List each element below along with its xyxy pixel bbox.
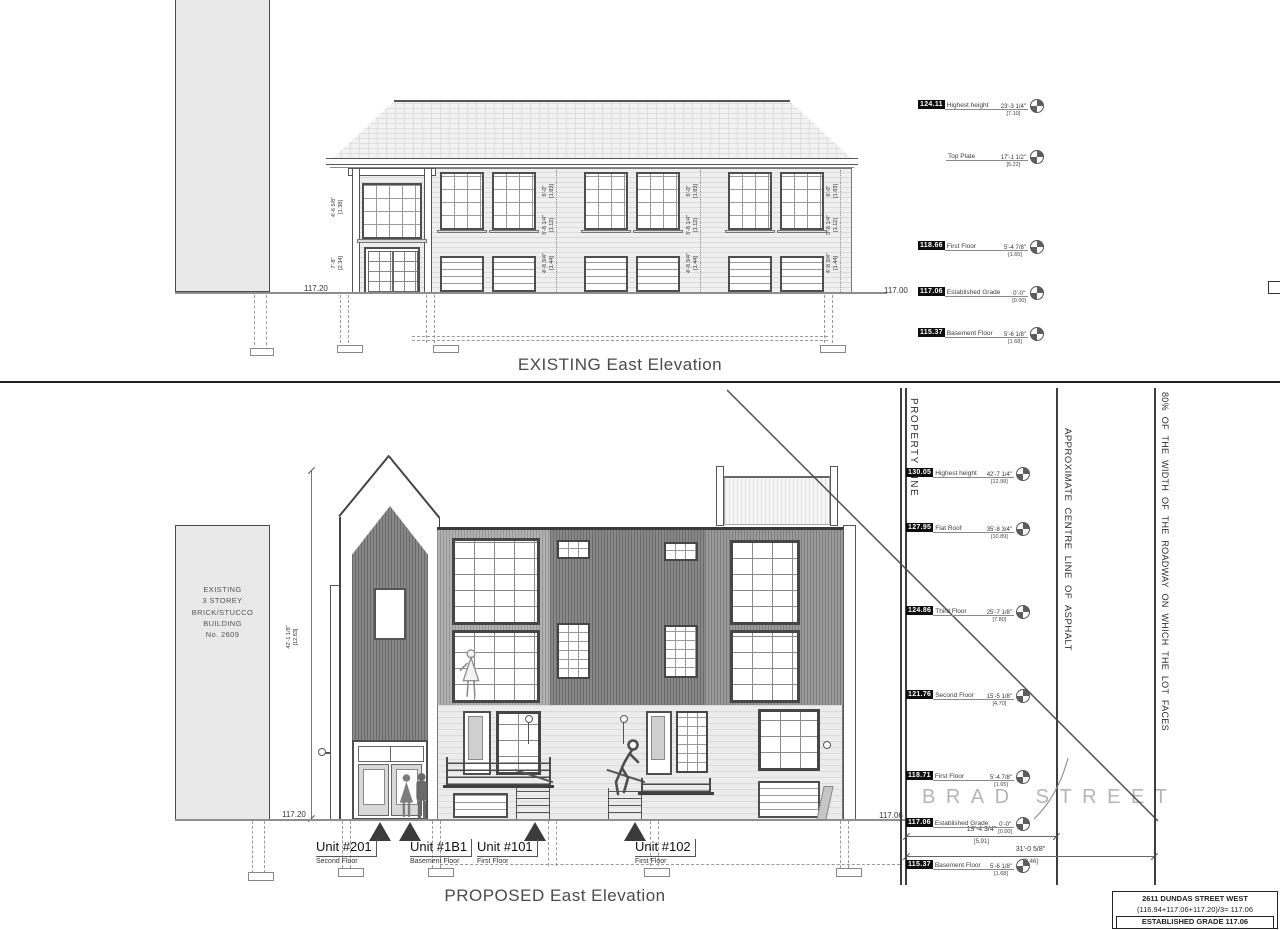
unit-callout: Unit #1B1 Basement Floor (410, 839, 472, 865)
marker-line: First Floor 5'-4 7/8" [1.65] (945, 237, 1028, 251)
person-figure-stairs (608, 738, 644, 796)
neighbor-building-label: EXISTING 3 STOREY BRICK/STUCCO BUILDING … (176, 584, 269, 640)
unit-floor: First Floor (477, 858, 538, 865)
street-name: BRAD STREET (922, 786, 1178, 809)
marker-ft: 0'-0" (1013, 291, 1025, 297)
roadway-label: 80% OF THE WIDTH OF THE ROADWAY ON WHICH… (1160, 392, 1170, 731)
unit-name: Unit #102 (635, 839, 696, 857)
marker-m: [4.70] (992, 702, 1006, 708)
centre-line-label: APPROXIMATE CENTRE LINE OF ASPHALT (1062, 428, 1073, 651)
wall-sconce-icon (823, 741, 831, 749)
dim-m: [1.44] (833, 248, 840, 278)
door-panel (468, 716, 483, 760)
dim-ft: 7'-8" (331, 248, 338, 278)
marker-line: Third Floor 25'-7 1/8" [7.80] (933, 602, 1014, 616)
elevation-value: 124.86 (906, 606, 933, 615)
roadway-80-line (1154, 388, 1156, 885)
unit-name: Unit #201 (316, 839, 377, 857)
datum-target-icon (1016, 770, 1030, 784)
grade-line-existing (175, 292, 887, 294)
section-divider (0, 381, 1280, 383)
door-panel (363, 769, 385, 805)
dim-ft: 6'-0" (686, 176, 693, 206)
elevation-marker: 118.71 First Floor 5'-4 7/8" [1.65] (906, 767, 1030, 784)
elevation-marker: 115.37 Basement Floor 5'-6 1/8" [1.68] (906, 856, 1030, 873)
elevation-value: 127.95 (906, 523, 933, 532)
datum-target-icon (1030, 240, 1044, 254)
door-panel (651, 716, 665, 760)
footing (433, 345, 459, 353)
neighbor-line: EXISTING (176, 584, 269, 595)
basement-window (780, 256, 824, 292)
marker-ft: 5'-4 7/8" (990, 775, 1012, 781)
footing (836, 868, 862, 877)
marker-label: Highest height (935, 471, 977, 478)
marker-dim: 5'-4 7/8" [1.65] (990, 775, 1012, 789)
centre-line-of-asphalt (1056, 388, 1058, 885)
dim-m: [1.12] (693, 210, 700, 240)
datum-target-icon (1030, 327, 1044, 341)
marker-line: Basement Floor 5'-6 1/8" [1.68] (945, 324, 1028, 338)
dim-m: [1.83] (549, 176, 556, 206)
parapet-post (830, 466, 838, 526)
main-block-upper (437, 527, 843, 705)
elevation-value: 118.66 (918, 241, 945, 250)
elevation-value: 117.06 (906, 818, 933, 827)
dim-m: [1.12] (549, 210, 556, 240)
dim-m: [1.83] (693, 176, 700, 206)
marker-dim: 42'-7 1/4" [12.99] (987, 472, 1012, 486)
marker-m: [7.80] (992, 618, 1006, 624)
window (636, 172, 680, 230)
window (584, 172, 628, 230)
person-figure-couple (396, 772, 432, 820)
marker-dim: 23'-3 1/4" [7.10] (1001, 104, 1026, 118)
sconce-bracket (325, 752, 331, 754)
elevation-marker: 117.06 Established Grade 0'-0" [0.00] (906, 814, 1030, 831)
elevation-marker: 121.76 Second Floor 15'-5 1/8" [4.70] (906, 686, 1030, 703)
datum-target-icon (1030, 99, 1044, 113)
elevation-value: 121.76 (906, 690, 933, 699)
balcony-railing (446, 757, 551, 785)
foundation-dashed (848, 821, 849, 868)
marker-label: Basement Floor (935, 863, 981, 870)
road-dim-ft: 31'-0 5/8" (906, 846, 1155, 853)
porch-window (362, 183, 422, 239)
window-dim: 4'-8 3/4"[1.44] (542, 248, 568, 278)
window-small (664, 625, 698, 678)
marker-line: Basement Floor 5'-6 1/8" [1.68] (933, 856, 1014, 870)
foundation-dashed (832, 295, 833, 343)
marker-ft: 15'-5 1/8" (987, 694, 1012, 700)
marker-m: [1.68] (994, 872, 1008, 878)
grade-label: 117.00 (884, 286, 908, 295)
rooftop-screen (724, 476, 830, 525)
vent-icon (620, 715, 628, 723)
footing (428, 868, 454, 877)
vent-pole (528, 722, 529, 744)
marker-line: Second Floor 15'-5 1/8" [4.70] (933, 686, 1014, 700)
roof-ridge-line (394, 100, 790, 102)
window-sill (633, 230, 683, 233)
basement-window (453, 793, 508, 818)
elevation-marker: 124.11 Highest height 23'-3 1/4" [7.10] (918, 96, 1044, 113)
balcony-railing (641, 778, 711, 792)
marker-m: [1.68] (1008, 340, 1022, 346)
marker-label: Flat Roof (935, 526, 961, 533)
property-line (905, 388, 907, 885)
window-small (664, 542, 698, 561)
marker-m: [10.89] (991, 535, 1008, 541)
marker-label: Established Grade (947, 290, 1000, 297)
footing (337, 345, 363, 353)
road-dim-m: [5.91] (906, 839, 1057, 845)
unit-floor: First Floor (635, 858, 696, 865)
basement-window (440, 256, 484, 292)
dim-m: [2.34] (338, 248, 345, 278)
elevation-marker: Top Plate 17'-1 1/2" [5.22] (918, 147, 1044, 164)
marker-label: Basement Floor (947, 331, 993, 338)
unit-floor: Second Floor (316, 858, 377, 865)
dim-ft: 3'-8 1/4" (826, 210, 833, 240)
grade-label: 117.20 (282, 810, 306, 819)
marker-ft: 5'-6 1/8" (990, 864, 1012, 870)
datum-target-icon (1016, 467, 1030, 481)
marker-m: [7.10] (1006, 112, 1020, 118)
window-sill (581, 230, 631, 233)
dim-ft: 6'-0" (542, 176, 549, 206)
unit-name: Unit #1B1 (410, 839, 472, 857)
window-small (557, 623, 590, 679)
grade-label: 117.06 (879, 811, 903, 820)
window-dim: 6'-0"[1.83] (686, 176, 712, 206)
window (492, 172, 536, 230)
person-figure-window (458, 648, 484, 700)
unit-callout: Unit #101 First Floor (477, 839, 538, 865)
window-sill (725, 230, 775, 233)
proposed-neighbor-building: EXISTING 3 STOREY BRICK/STUCCO BUILDING … (175, 525, 270, 821)
cutoff-marker (1268, 281, 1280, 294)
neighbor-line: 3 STOREY (176, 595, 269, 606)
foundation-dashed (254, 295, 255, 345)
window-dim: 3'-8 1/4"[1.12] (686, 210, 712, 240)
marker-label: First Floor (935, 774, 964, 781)
dim-ft: 4'-8 3/4" (542, 248, 549, 278)
elevation-marker: 130.05 Highest height 42'-7 1/4" [12.99] (906, 464, 1030, 481)
porch-dim: 4'-6 5/8" [1.38] (331, 192, 361, 222)
marker-m: [12.99] (991, 480, 1008, 486)
property-line-label: PROPERTY LINE (908, 398, 919, 497)
neighbor-line: No. 2609 (176, 629, 269, 640)
window-dim: 6'-0"[1.83] (542, 176, 568, 206)
marker-line: Highest height 23'-3 1/4" [7.10] (945, 96, 1028, 110)
drawing-canvas: 4'-6 5/8" [1.38] 7'-8" [2.34] 6'-0"[1.83… (0, 0, 1280, 930)
entry-door-leaf (358, 764, 389, 816)
road-dim-line (906, 836, 1057, 837)
marker-m: [5.22] (1006, 163, 1020, 169)
unit-callout: Unit #201 Second Floor (316, 839, 377, 865)
titleblock-established-grade: ESTABLISHED GRADE 117.06 (1116, 916, 1274, 929)
tower-window (374, 588, 406, 640)
marker-label: Second Floor (935, 693, 974, 700)
basement-window (636, 256, 680, 292)
elevation-value: 124.11 (918, 100, 945, 109)
existing-neighbor-building (175, 0, 270, 292)
dim-m: [1.83] (833, 176, 840, 206)
datum-target-icon (1030, 150, 1044, 164)
dim-ft: 42'-1 1/8" (286, 615, 293, 659)
basement-window (758, 781, 820, 818)
title-block: 2611 DUNDAS STREET WEST (116.94+117.06+1… (1112, 891, 1278, 929)
marker-dim: 5'-6 1/8" [1.68] (990, 864, 1012, 878)
marker-dim: 0'-0" [0.00] (998, 822, 1012, 836)
footing (338, 868, 364, 877)
basement-slab-dashed (412, 340, 828, 341)
unit-name: Unit #101 (477, 839, 538, 857)
entry-doors-frame (364, 247, 420, 294)
marker-ft: 5'-4 7/8" (1004, 245, 1026, 251)
entry-door (646, 711, 672, 775)
window (440, 172, 484, 230)
entry-transom (358, 746, 424, 762)
marker-dim: 17'-1 1/2" [5.22] (1001, 155, 1026, 169)
marker-label: Highest height (947, 103, 989, 110)
tower-edge (339, 517, 341, 820)
porch-post (424, 168, 432, 294)
datum-target-icon (1016, 817, 1030, 831)
proposed-title: PROPOSED East Elevation (390, 886, 720, 906)
window-large (730, 630, 800, 703)
footing (644, 868, 670, 877)
elevation-marker: 127.95 Flat Roof 35'-8 3/4" [10.89] (906, 519, 1030, 536)
titleblock-calc: (116.94+117.06+117.20)/3= 117.06 (1116, 905, 1274, 916)
eave-fascia (326, 158, 858, 165)
marker-line: Established Grade 0'-0" [0.00] (945, 283, 1028, 297)
window-small (557, 540, 590, 559)
elevation-value: 118.71 (906, 771, 933, 780)
marker-line: Top Plate 17'-1 1/2" [5.22] (946, 147, 1028, 161)
porch-window-sill (357, 239, 427, 243)
marker-dim: 15'-5 1/8" [4.70] (987, 694, 1012, 708)
marker-dim: 35'-8 3/4" [10.89] (987, 527, 1012, 541)
datum-target-icon (1016, 605, 1030, 619)
marker-m: [1.65] (1008, 253, 1022, 259)
window-dim: 4'-8 3/4"[1.44] (686, 248, 712, 278)
datum-target-icon (1016, 859, 1030, 873)
marker-dim: 25'-7 1/8" [7.80] (987, 610, 1012, 624)
marker-ft: 0'-0" (999, 822, 1011, 828)
marker-dim: 0'-0" [0.00] (1012, 291, 1026, 305)
footing (248, 872, 274, 881)
height-dim: 42'-1 1/8" [12.83] (286, 615, 330, 659)
corner-board (843, 525, 856, 820)
existing-roof (332, 101, 852, 159)
porch-dim: 7'-8" [2.34] (331, 248, 361, 278)
marker-line: First Floor 5'-4 7/8" [1.65] (933, 767, 1014, 781)
window-dim: 3'-8 1/4"[1.12] (542, 210, 568, 240)
marker-line: Established Grade 0'-0" [0.00] (933, 814, 1014, 828)
elevation-value: 117.06 (918, 287, 945, 296)
window-large (730, 540, 800, 625)
marker-dim: 5'-4 7/8" [1.65] (1004, 245, 1026, 259)
elevation-marker: 115.37 Basement Floor 5'-6 1/8" [1.68] (918, 324, 1044, 341)
neighbor-line: BRICK/STUCCO (176, 607, 269, 618)
window-large (452, 538, 540, 625)
window-sill (777, 230, 827, 233)
existing-title: EXISTING East Elevation (430, 355, 810, 375)
dim-m: [1.38] (338, 192, 345, 222)
window (780, 172, 824, 230)
window-sill (489, 230, 539, 233)
footing (250, 348, 274, 356)
titleblock-address: 2611 DUNDAS STREET WEST (1116, 894, 1274, 905)
foundation-dashed (252, 821, 253, 873)
window-dim: 4'-8 3/4"[1.44] (826, 248, 852, 278)
foundation-dashed (266, 295, 267, 345)
window-dim: 3'-8 1/4"[1.12] (826, 210, 852, 240)
elevation-value: 115.37 (906, 860, 933, 869)
parapet-post (716, 466, 724, 526)
neighbor-line: BUILDING (176, 618, 269, 629)
marker-ft: 17'-1 1/2" (1001, 155, 1026, 161)
window-dim: 6'-0"[1.83] (826, 176, 852, 206)
datum-target-icon (1016, 522, 1030, 536)
dim-ft: 4'-6 5/8" (331, 192, 338, 222)
basement-window (492, 256, 536, 292)
marker-label: Top Plate (948, 154, 975, 161)
door-leaf (393, 251, 418, 292)
marker-ft: 5'-6 1/8" (1004, 332, 1026, 338)
marker-label: Established Grade (935, 821, 988, 828)
foundation-dashed (348, 295, 349, 343)
unit-callout: Unit #102 First Floor (635, 839, 696, 865)
datum-target-icon (1030, 286, 1044, 300)
elevation-value: 115.37 (918, 328, 945, 337)
foundation-dashed (340, 295, 341, 343)
window-ground (758, 709, 820, 771)
foundation-dashed (840, 821, 841, 868)
marker-label: Third Floor (935, 609, 966, 616)
footing (820, 345, 846, 353)
foundation-dashed (264, 821, 265, 873)
window-sill (437, 230, 487, 233)
elevation-marker: 124.86 Third Floor 25'-7 1/8" [7.80] (906, 602, 1030, 619)
dim-m: [1.44] (693, 248, 700, 278)
marker-ft: 23'-3 1/4" (1001, 104, 1026, 110)
marker-m: [0.00] (998, 830, 1012, 836)
foundation-dashed (556, 821, 557, 866)
marker-ft: 25'-7 1/8" (987, 610, 1012, 616)
dim-ft: 3'-8 1/4" (542, 210, 549, 240)
marker-ft: 35'-8 3/4" (987, 527, 1012, 533)
basement-stair (516, 788, 550, 820)
marker-line: Flat Roof 35'-8 3/4" [10.89] (933, 519, 1014, 533)
marker-dim: 5'-6 1/8" [1.68] (1004, 332, 1026, 346)
elevation-value: 130.05 (906, 468, 933, 477)
basement-window (584, 256, 628, 292)
foundation-dashed (548, 821, 549, 866)
dim-m: [1.12] (833, 210, 840, 240)
dim-ft: 3'-8 1/4" (686, 210, 693, 240)
dim-ft: 6'-0" (826, 176, 833, 206)
vent-icon (525, 715, 533, 723)
elevation-marker: 118.66 First Floor 5'-4 7/8" [1.65] (918, 237, 1044, 254)
balcony-slab (638, 792, 714, 795)
marker-ft: 42'-7 1/4" (987, 472, 1012, 478)
dim-m: [12.83] (293, 615, 300, 659)
dim-ft: 4'-8 3/4" (826, 248, 833, 278)
basement-window (728, 256, 772, 292)
datum-target-icon (1016, 689, 1030, 703)
window (728, 172, 772, 230)
porch-canopy (348, 168, 436, 176)
marker-m: [1.65] (994, 783, 1008, 789)
basement-slab-dashed (412, 336, 828, 337)
dim-ft: 4'-8 3/4" (686, 248, 693, 278)
unit-floor: Basement Floor (410, 858, 472, 865)
elevation-marker: 117.06 Established Grade 0'-0" [0.00] (918, 283, 1044, 300)
marker-label: First Floor (947, 244, 976, 251)
marker-m: [0.00] (1012, 299, 1026, 305)
door-leaf (368, 251, 393, 292)
grade-label: 117.20 (304, 284, 328, 293)
window-ground (676, 711, 708, 773)
marker-line: Highest height 42'-7 1/4" [12.99] (933, 464, 1014, 478)
dim-m: [1.44] (549, 248, 556, 278)
